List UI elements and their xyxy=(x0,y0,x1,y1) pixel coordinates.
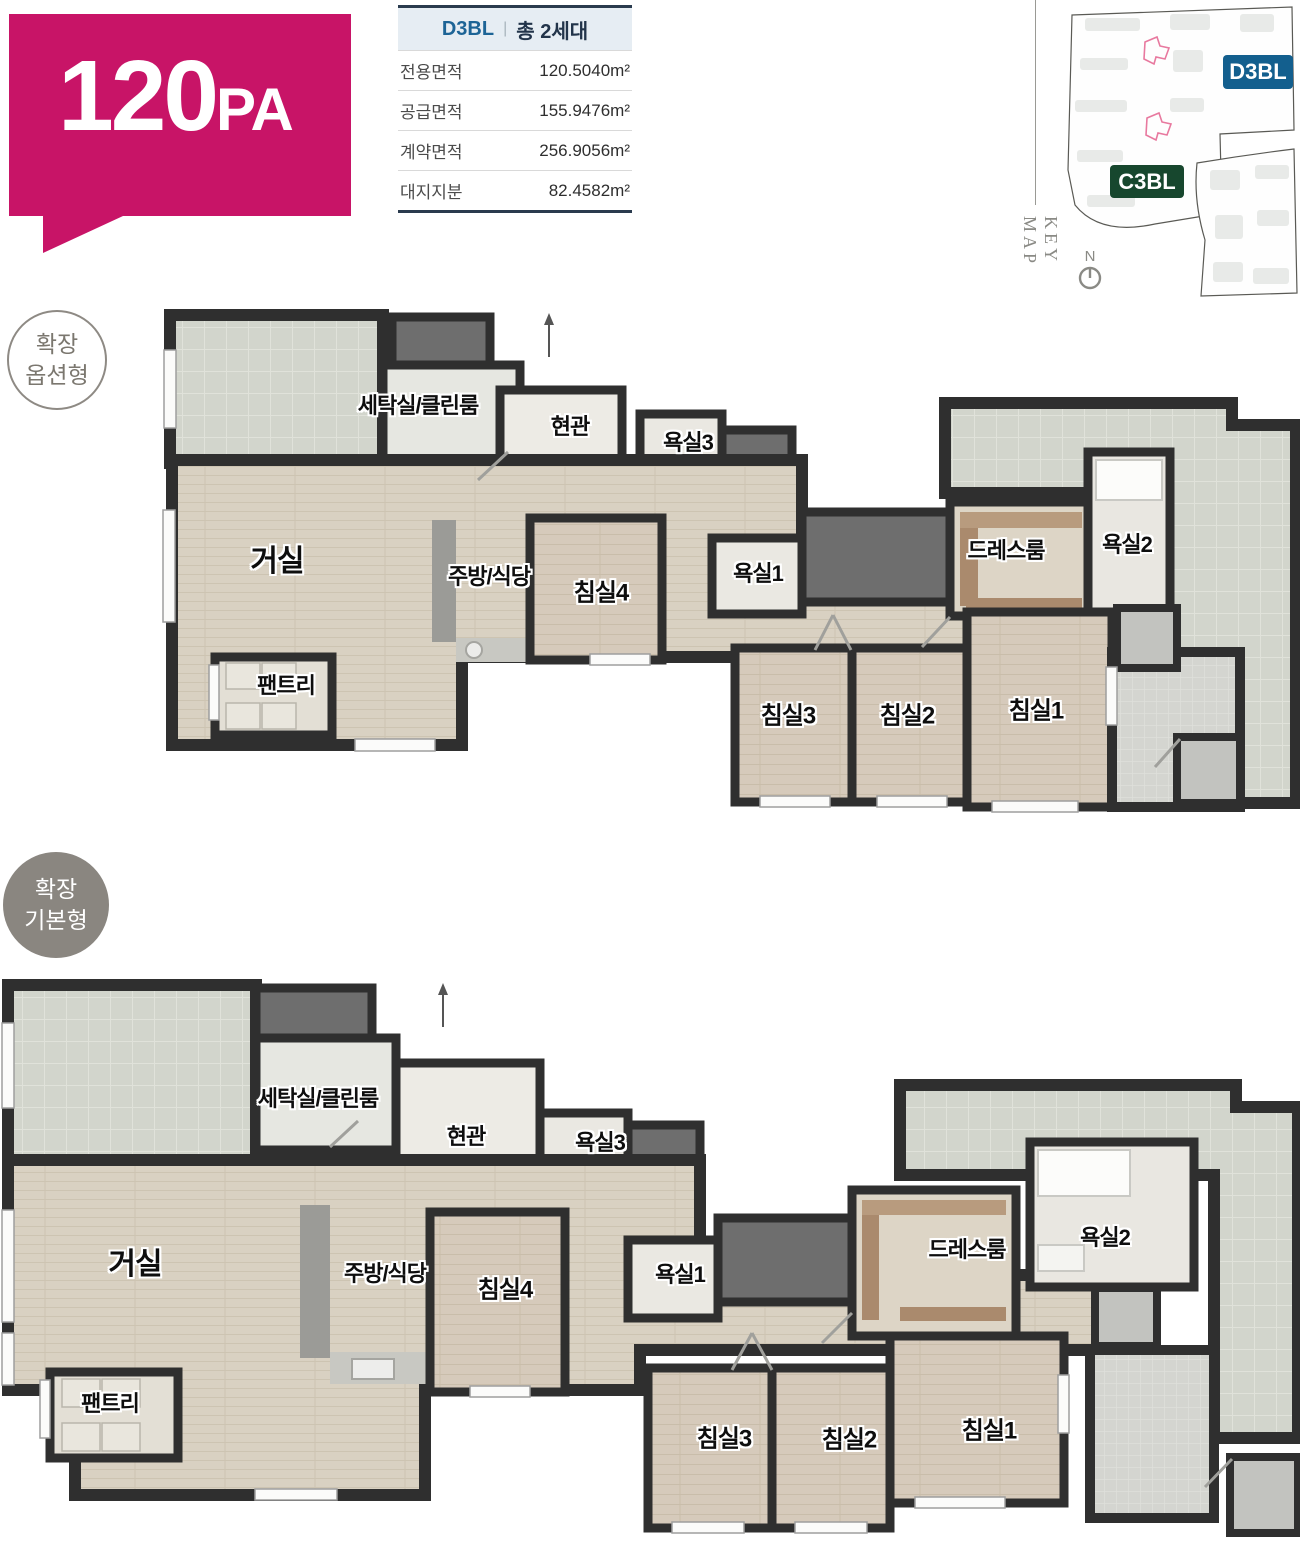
key-map: KEY MAP N D3BL C3BL xyxy=(1005,0,1300,312)
spec-label: 공급면적 xyxy=(400,98,463,123)
block-code: D3BL xyxy=(442,18,494,41)
spec-value: 256.9056m² xyxy=(539,141,630,161)
spec-table: D3BL | 총 2세대 전용면적 120.5040m² 공급면적 155.94… xyxy=(398,5,632,213)
flyer-page: 120 PA D3BL | 총 2세대 전용면적 120.5040m² 공급면적… xyxy=(0,0,1300,1550)
unit-number: 120 xyxy=(58,46,216,146)
north-label: N xyxy=(1075,250,1105,264)
spec-row: 대지지분 82.4582m² xyxy=(398,170,632,210)
spec-label: 계약면적 xyxy=(400,138,463,163)
spec-row: 계약면적 256.9056m² xyxy=(398,130,632,170)
chip-label: C3BL xyxy=(1118,169,1175,195)
chip-label: D3BL xyxy=(1229,59,1286,85)
spec-table-header: D3BL | 총 2세대 xyxy=(398,5,632,50)
plan-badge-basic: 확장 기본형 xyxy=(3,852,109,958)
divider: | xyxy=(503,20,507,38)
spec-label: 전용면적 xyxy=(400,58,463,83)
floor-plan-option-svg xyxy=(160,305,1300,835)
keymap-chip-c3bl: C3BL xyxy=(1110,165,1184,198)
plan-badge-option: 확장 옵션형 xyxy=(7,310,107,410)
north-compass-icon: N xyxy=(1075,250,1105,295)
plan-badge-line: 확장 xyxy=(35,874,77,905)
spec-value: 155.9476m² xyxy=(539,101,630,121)
plan-badge-line: 확장 xyxy=(36,329,78,360)
spec-row: 공급면적 155.9476m² xyxy=(398,90,632,130)
spec-label: 대지지분 xyxy=(400,178,463,203)
keymap-chip-d3bl: D3BL xyxy=(1223,55,1293,89)
unit-type-badge: 120 PA xyxy=(5,6,350,256)
spec-value: 82.4582m² xyxy=(549,181,630,201)
plan-badge-line: 옵션형 xyxy=(25,360,88,391)
spec-row: 전용면적 120.5040m² xyxy=(398,50,632,90)
floor-plan-basic-svg xyxy=(0,975,1300,1550)
plan-badge-line: 기본형 xyxy=(24,905,87,936)
spec-value: 120.5040m² xyxy=(539,61,630,81)
total-units: 총 2세대 xyxy=(516,15,588,44)
keymap-title: KEY MAP xyxy=(1019,216,1061,312)
unit-suffix: PA xyxy=(216,80,293,140)
keymap-divider-line xyxy=(1035,0,1036,205)
